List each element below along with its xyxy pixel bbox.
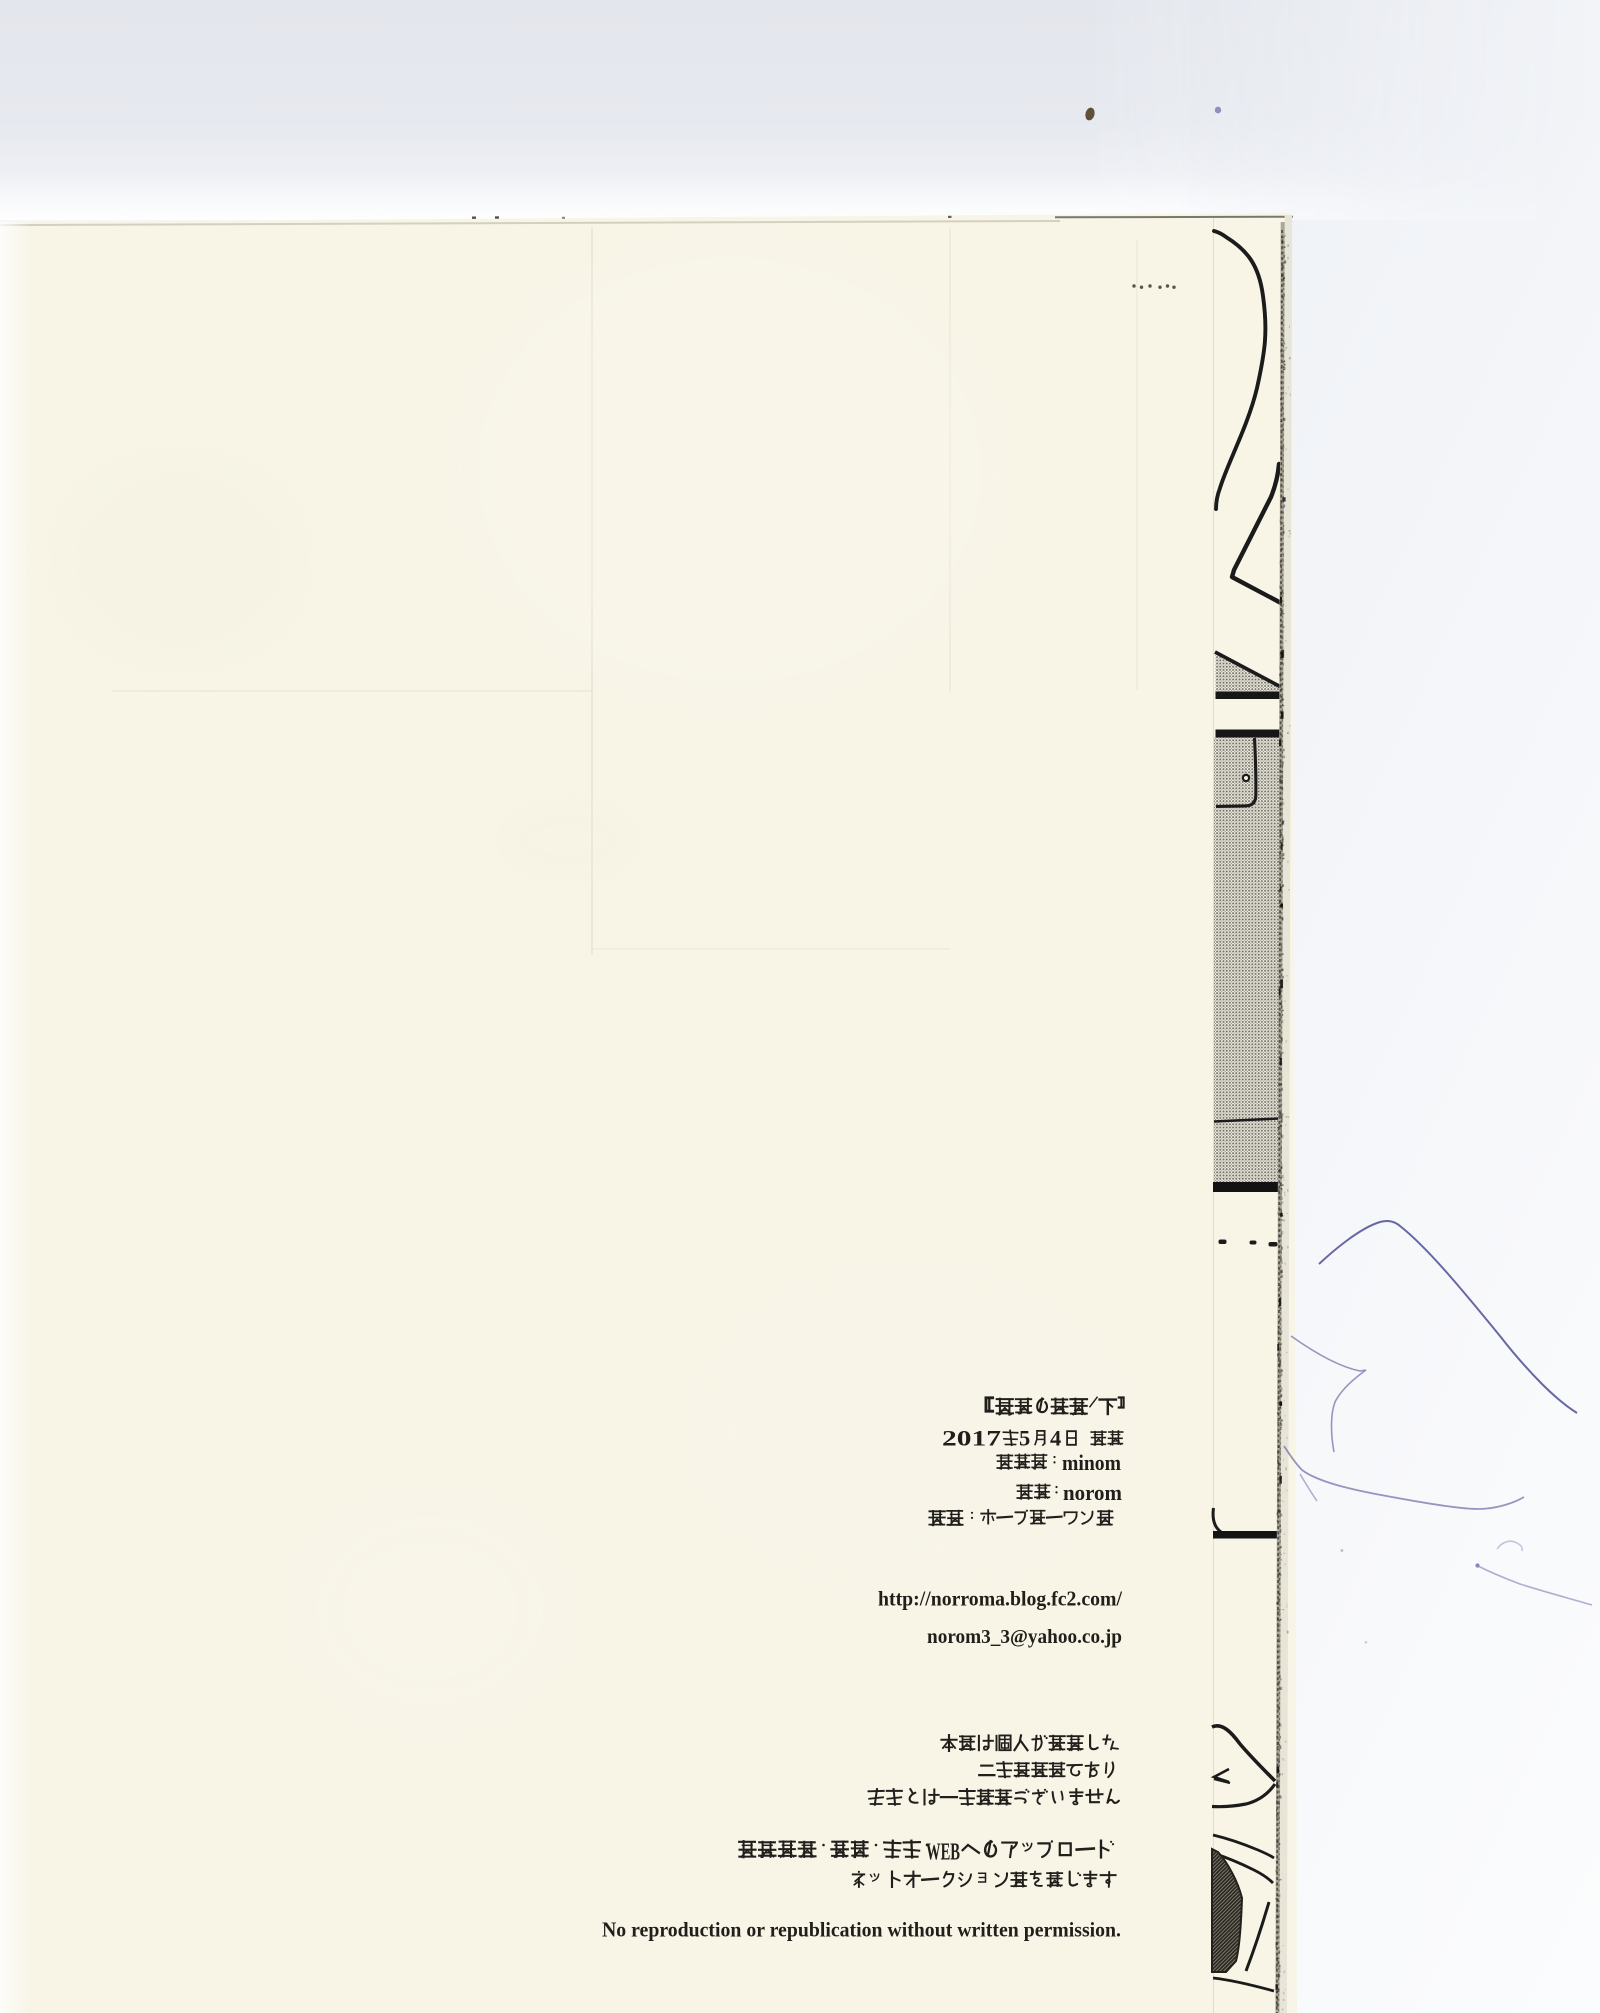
- svg-text:No reproduction or republicati: No reproduction or republication without…: [602, 1918, 1121, 1942]
- svg-text:http://norroma.blog.fc2.com/: http://norroma.blog.fc2.com/: [878, 1587, 1123, 1611]
- svg-text:WEB: WEB: [926, 1840, 960, 1866]
- svg-text:norom: norom: [1063, 1480, 1122, 1505]
- svg-text:4: 4: [1050, 1426, 1061, 1451]
- svg-text:5: 5: [1019, 1426, 1030, 1451]
- svg-text:2017: 2017: [942, 1426, 1001, 1451]
- svg-text:minom: minom: [1062, 1450, 1121, 1475]
- svg-text:norom3_3@yahoo.co.jp: norom3_3@yahoo.co.jp: [927, 1626, 1122, 1648]
